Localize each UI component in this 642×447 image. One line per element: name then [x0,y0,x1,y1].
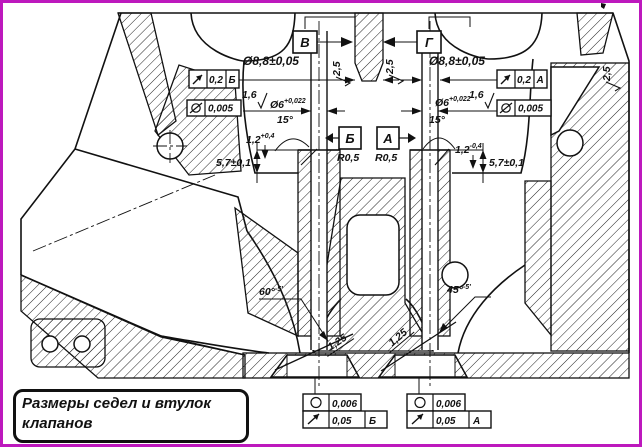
roughness-value: 1,6 [242,89,257,101]
tolerance-value: 0,006 [436,399,461,410]
bottom-left-tolerance-frames: 0,006 0,05 Б [303,378,387,428]
right-runout-frame: 0,2 А [497,70,547,88]
dim-tolerance: +0,022 [284,98,306,105]
right-guide-bore-dim: Ø8,8±0,05 [401,54,497,84]
dim-base: 1,2 [246,134,261,146]
dim-text: 5,7±0,1 [216,157,251,169]
dim-base: 45° [446,284,464,296]
dim-tolerance: -5' [275,286,283,293]
fillet-radius: R0,5 [375,152,397,164]
dim-base: Ø6 [435,97,449,109]
datum-letter: Б [345,131,354,146]
center-water-jacket [347,215,399,295]
tolerance-value: 0,006 [332,399,357,410]
svg-text:1,2-0,4: 1,2-0,4 [455,143,482,156]
drawing-title-line1: Размеры седел и втулок [22,394,240,414]
tolerance-value: 0,005 [518,104,543,115]
tolerance-datum: А [472,416,480,427]
roughness-value: 2,5 [331,61,343,77]
tolerance-value: 0,05 [332,416,352,427]
right-rocker-opening [435,13,542,59]
dim-tolerance: +0,4 [261,133,275,140]
dim-text: Ø8,8±0,05 [243,54,299,68]
bottom-right-tolerance-frames: 0,006 0,05 А [407,378,491,428]
boss-hole-1 [42,336,58,352]
roughness-value: 2,5 [601,66,613,82]
left-form-frame: 0,005 [187,100,241,116]
roughness-value: 1,6 [469,89,484,101]
drawing-title-box: Размеры седел и втулок клапанов [13,389,249,443]
dim-text: 15° [277,114,294,126]
left-stem-bore-dim: 1,6 Ø6+0,022 [242,89,345,115]
engineering-section-drawing: В Г 2,5 2,5 2,5 Ø8,8±0,05 [3,3,639,444]
roughness-value: 2,5 [384,59,396,75]
tolerance-datum: Б [229,75,236,86]
fillet-radius: R0,5 [337,152,359,164]
svg-text:Ø6+0,022: Ø6+0,022 [435,96,471,109]
dim-tolerance: -5' [463,284,471,291]
tolerance-value: 0,2 [209,75,223,86]
tolerance-value: 0,005 [208,104,233,115]
boss-hole-2 [74,336,90,352]
surface-finish-icon [258,93,267,108]
dim-text: 15° [429,114,446,126]
view-label-left-text: В [300,35,309,50]
section-arrow-icon [383,37,395,47]
drawing-title-line2: клапанов [22,414,240,434]
dim-tolerance: +0,022 [449,96,471,103]
svg-text:Ø6+0,022: Ø6+0,022 [270,98,306,111]
dim-base: 60° [259,286,276,298]
top-right-block [577,13,613,55]
dim-tolerance: -0,4 [470,143,482,150]
tolerance-datum: Б [369,416,376,427]
tolerance-datum: А [536,75,544,86]
right-chamfer-depth: 1,2-0,4 [455,143,482,169]
far-right-hole [557,130,583,156]
center-top-column [355,13,383,81]
artifact-mark [601,3,606,9]
tolerance-value: 0,2 [517,75,531,86]
dim-text: 5,7±0,1 [489,157,524,169]
svg-text:45°-5': 45°-5' [446,284,471,296]
valve-seat-drawing: В Г 2,5 2,5 2,5 Ø8,8±0,05 [0,0,642,447]
svg-text:1,2+0,4: 1,2+0,4 [246,133,275,146]
dim-text: Ø8,8±0,05 [429,54,485,68]
left-port-wall-mass [235,208,298,336]
surface-finish-icon [485,93,494,108]
right-pocket-wall [525,181,551,335]
right-form-frame: 0,005 [497,100,551,116]
head-left-edge [21,13,121,275]
right-stem-bore-dim: 1,6 Ø6+0,022 [401,89,497,115]
view-label-right-text: Г [425,35,434,50]
datum-letter: А [382,131,392,146]
tolerance-value: 0,05 [436,416,456,427]
left-runout-frame: 0,2 Б [189,70,239,88]
datum-triangle-icon [408,133,416,143]
section-arrow-icon [341,37,353,47]
dim-base: Ø6 [270,99,284,111]
